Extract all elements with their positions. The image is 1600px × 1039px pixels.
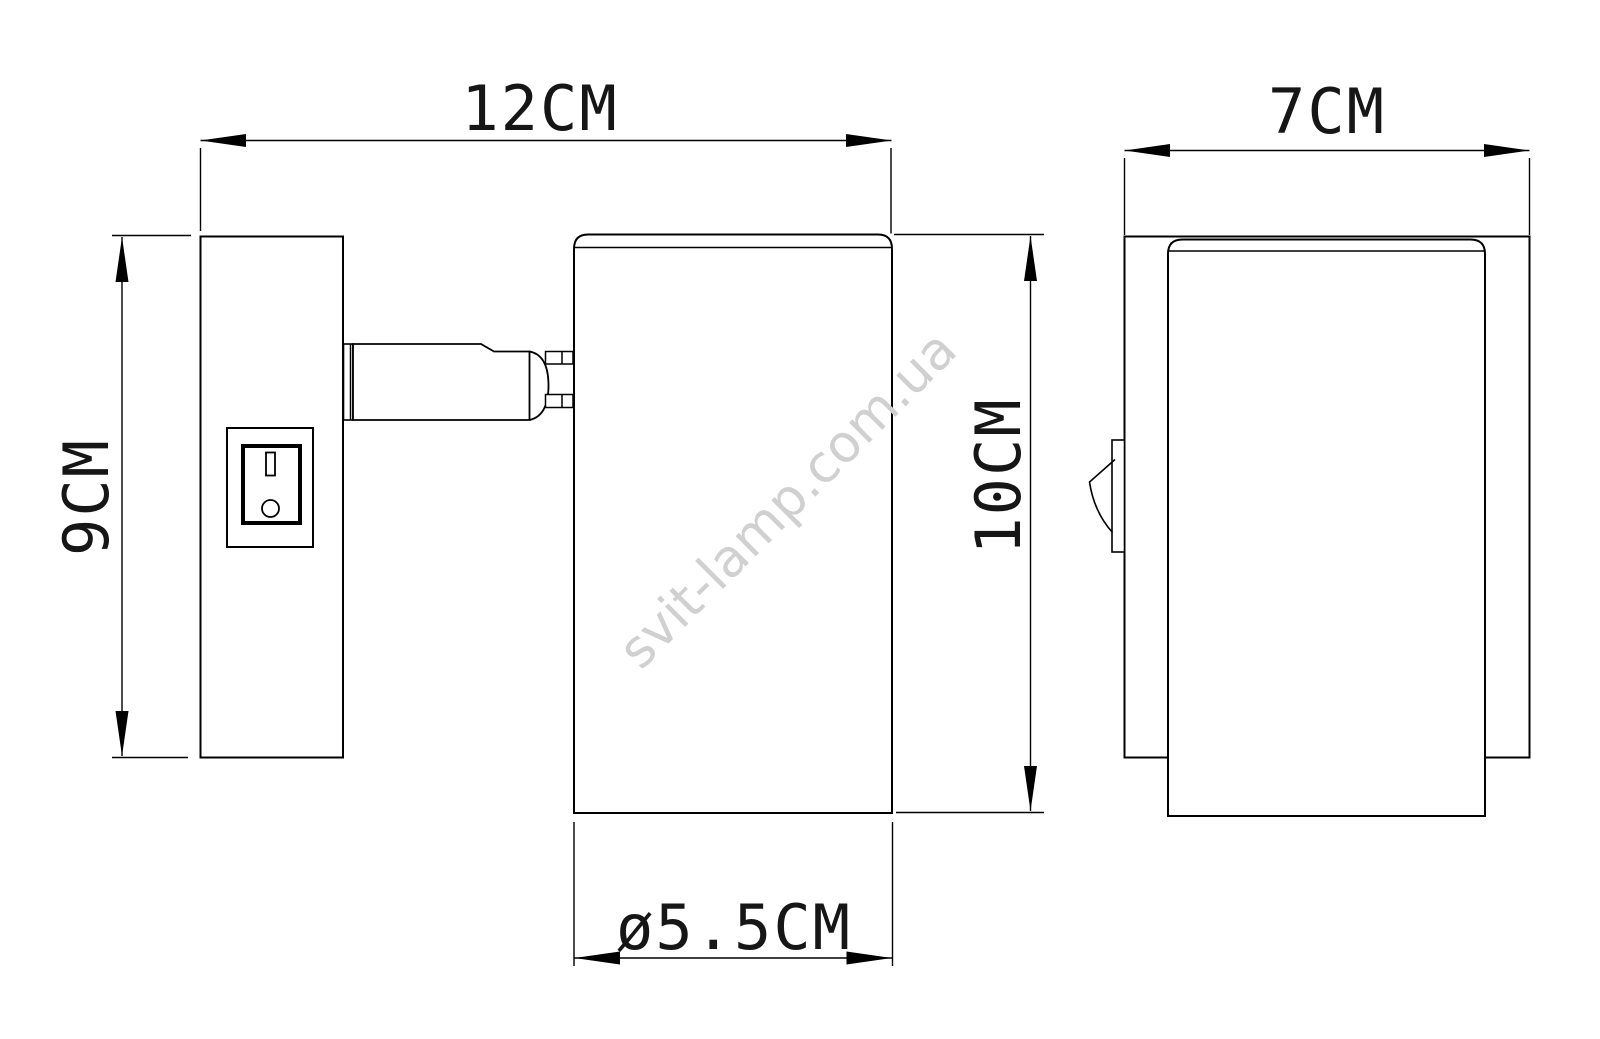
arm-body — [353, 344, 530, 420]
switch-side-lever — [1090, 460, 1116, 533]
lamp-head-side — [1168, 240, 1485, 817]
dim-overall-width: 12CM — [201, 72, 892, 234]
dim-depth: 7CM — [1125, 75, 1530, 235]
dim10-label: 10CM — [962, 397, 1035, 554]
dim7-arrow-left — [1125, 144, 1171, 157]
dim55-arrow-right — [847, 952, 893, 965]
lamp-head-side-outline — [1168, 240, 1485, 817]
dim9-arrow-top — [116, 237, 129, 282]
dim-head-height: 10CM — [894, 235, 1044, 813]
switch-side-base — [1112, 440, 1125, 552]
dim55-label: ø5.5CM — [616, 891, 852, 964]
dim7-arrow-right — [1484, 144, 1530, 157]
dim-head-diameter: ø5.5CM — [574, 822, 893, 966]
switch-off-mark — [262, 500, 279, 517]
dim9-arrow-bottom — [116, 711, 129, 756]
switch-front — [227, 428, 313, 547]
switch-side — [1090, 440, 1125, 552]
arm-mount-tab — [344, 344, 354, 420]
fork-prong-top — [546, 352, 574, 365]
dim10-arrow-top — [1024, 236, 1037, 281]
dim55-arrow-left — [575, 952, 621, 965]
pivot-arm — [344, 344, 574, 420]
dim12-arrow-right — [846, 134, 892, 147]
fork-prong-bottom — [546, 395, 574, 408]
wall-lamp-dimension-drawing: 12CM 7CM 9CM 10CM ø5.5CM svit-lamp. — [0, 0, 1600, 1039]
dim12-arrow-left — [201, 134, 247, 147]
switch-on-mark — [266, 453, 275, 476]
dim10-arrow-bottom — [1024, 766, 1037, 811]
dim7-label: 7CM — [1268, 75, 1386, 148]
side-view — [1090, 237, 1530, 817]
dim-backplate-height: 9CM — [50, 236, 191, 758]
dim9-label: 9CM — [50, 438, 123, 556]
technical-drawing-page: 12CM 7CM 9CM 10CM ø5.5CM svit-lamp. — [0, 0, 1600, 1039]
dim12-label: 12CM — [461, 72, 618, 145]
